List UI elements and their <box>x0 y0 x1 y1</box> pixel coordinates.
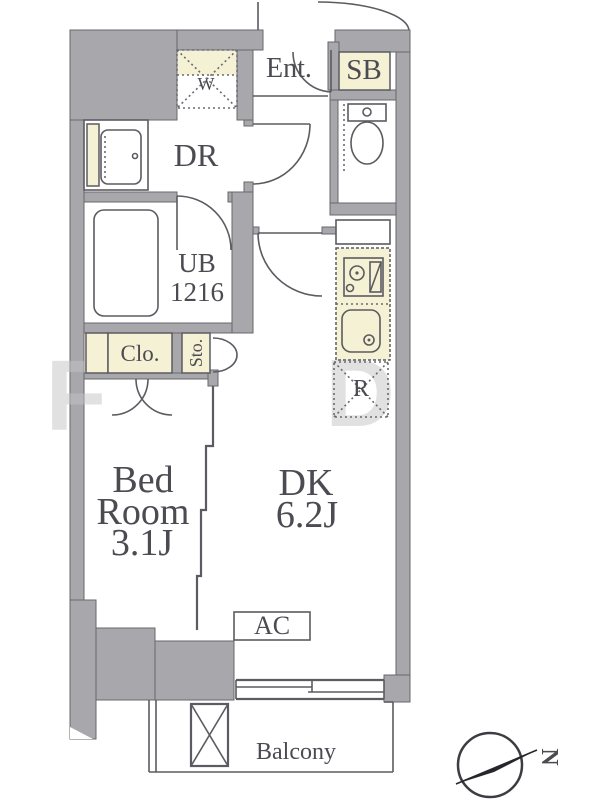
floorplan-page: F D W <box>0 0 600 800</box>
compass-north-label: N <box>536 748 562 766</box>
balcony-label: Balcony <box>256 739 336 765</box>
dressing-room-label: DR <box>174 137 219 173</box>
refrigerator-label: R <box>353 376 369 402</box>
dk-label-line2: 6.2J <box>276 494 338 536</box>
compass: N <box>456 733 562 797</box>
bedroom-label-line3: 3.1J <box>111 522 173 564</box>
shoebox-label: SB <box>346 54 381 86</box>
storage-label: Sto. <box>186 339 206 368</box>
unit-bath-label-line1: UB <box>178 248 216 278</box>
kitchen-cabinet <box>336 220 390 244</box>
room-label-entrance: Ent. <box>266 53 312 84</box>
front-door-swing-arc <box>258 2 409 31</box>
floorplan-drawing: F D W <box>0 0 600 800</box>
pipe-space <box>86 333 108 373</box>
washer-label: W <box>198 74 215 94</box>
unit-bath-label-line2: 1216 <box>170 277 224 307</box>
evacuation-hatch <box>191 704 228 766</box>
ac-label: AC <box>254 611 290 640</box>
closet-label: Clo. <box>121 341 160 366</box>
compass-circle <box>458 733 522 797</box>
